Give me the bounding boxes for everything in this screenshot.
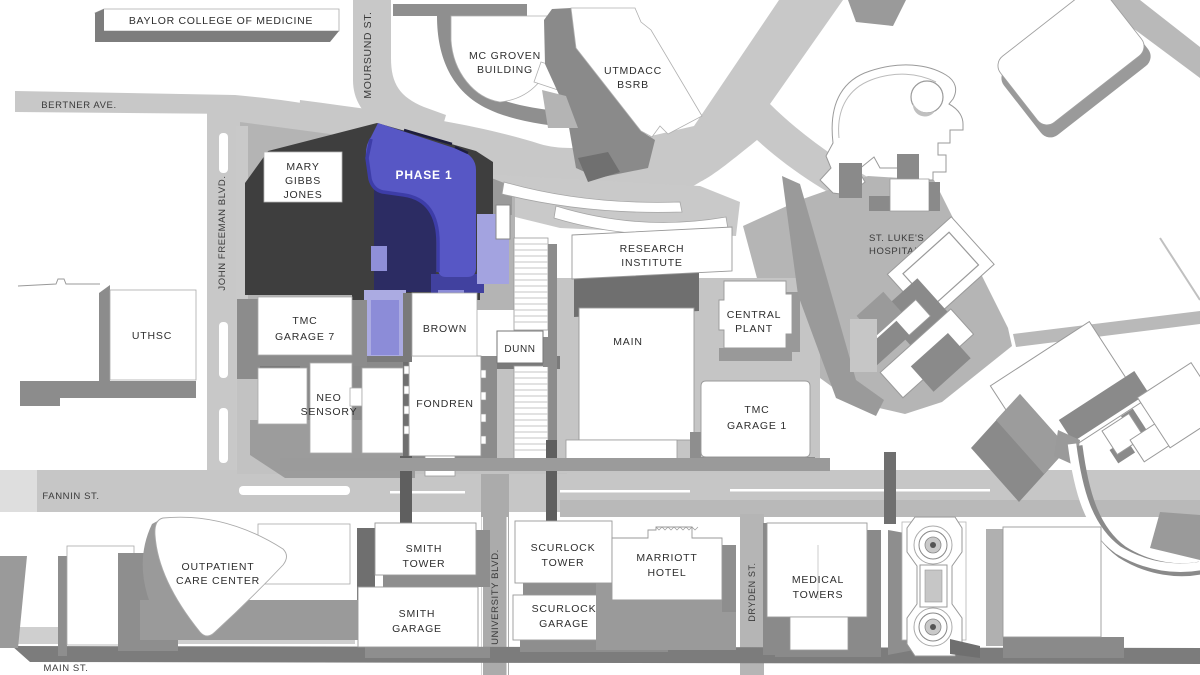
svg-text:MARY: MARY	[286, 161, 319, 173]
svg-text:TOWER: TOWER	[542, 557, 585, 569]
svg-text:INSTITUTE: INSTITUTE	[621, 257, 682, 269]
svg-text:DUNN: DUNN	[504, 344, 535, 355]
svg-text:OUTPATIENT: OUTPATIENT	[182, 561, 255, 573]
svg-text:HOTEL: HOTEL	[647, 567, 686, 579]
svg-text:NEO: NEO	[316, 392, 341, 404]
svg-text:SMITH: SMITH	[399, 608, 436, 620]
svg-text:GARAGE: GARAGE	[392, 623, 442, 635]
svg-text:CARE CENTER: CARE CENTER	[176, 575, 260, 587]
svg-text:TOWERS: TOWERS	[793, 589, 844, 601]
svg-text:MAIN ST.: MAIN ST.	[44, 663, 89, 674]
svg-text:GARAGE 1: GARAGE 1	[727, 420, 787, 432]
svg-text:UTMDACC: UTMDACC	[604, 65, 662, 77]
svg-text:UNIVERSITY BLVD.: UNIVERSITY BLVD.	[490, 549, 501, 645]
svg-text:PLANT: PLANT	[735, 323, 773, 335]
svg-text:JOHN FREEMAN BLVD.: JOHN FREEMAN BLVD.	[217, 175, 228, 290]
svg-text:RESEARCH: RESEARCH	[620, 243, 685, 255]
svg-text:BSRB: BSRB	[617, 79, 649, 91]
svg-text:SMITH: SMITH	[406, 543, 443, 555]
svg-text:BAYLOR COLLEGE OF MEDICINE: BAYLOR COLLEGE OF MEDICINE	[129, 15, 313, 27]
svg-text:DRYDEN ST.: DRYDEN ST.	[747, 562, 757, 621]
svg-text:TOWER: TOWER	[403, 558, 446, 570]
svg-text:GARAGE 7: GARAGE 7	[275, 331, 335, 343]
svg-text:GARAGE: GARAGE	[539, 618, 589, 630]
svg-text:SENSORY: SENSORY	[301, 406, 358, 418]
svg-text:CENTRAL: CENTRAL	[727, 309, 782, 321]
svg-text:UTHSC: UTHSC	[132, 330, 172, 342]
svg-text:MARRIOTT: MARRIOTT	[636, 552, 697, 564]
svg-text:TMC: TMC	[292, 315, 317, 327]
svg-text:SCURLOCK: SCURLOCK	[532, 603, 597, 615]
svg-text:FANNIN ST.: FANNIN ST.	[42, 491, 99, 502]
svg-text:MAIN: MAIN	[613, 336, 642, 348]
svg-text:BERTNER AVE.: BERTNER AVE.	[41, 100, 116, 111]
svg-text:MOURSUND ST.: MOURSUND ST.	[362, 11, 374, 98]
svg-text:SCURLOCK: SCURLOCK	[531, 542, 596, 554]
svg-text:MC GROVEN: MC GROVEN	[469, 50, 541, 62]
svg-text:PHASE 1: PHASE 1	[396, 168, 453, 182]
svg-text:BROWN: BROWN	[423, 323, 467, 335]
svg-text:GIBBS: GIBBS	[285, 175, 321, 187]
svg-text:ST. LUKE'S: ST. LUKE'S	[869, 233, 924, 244]
svg-text:FONDREN: FONDREN	[416, 398, 474, 410]
svg-text:MEDICAL: MEDICAL	[792, 574, 844, 586]
svg-text:JONES: JONES	[283, 189, 322, 201]
svg-text:BUILDING: BUILDING	[477, 64, 533, 76]
svg-text:TMC: TMC	[744, 404, 769, 416]
